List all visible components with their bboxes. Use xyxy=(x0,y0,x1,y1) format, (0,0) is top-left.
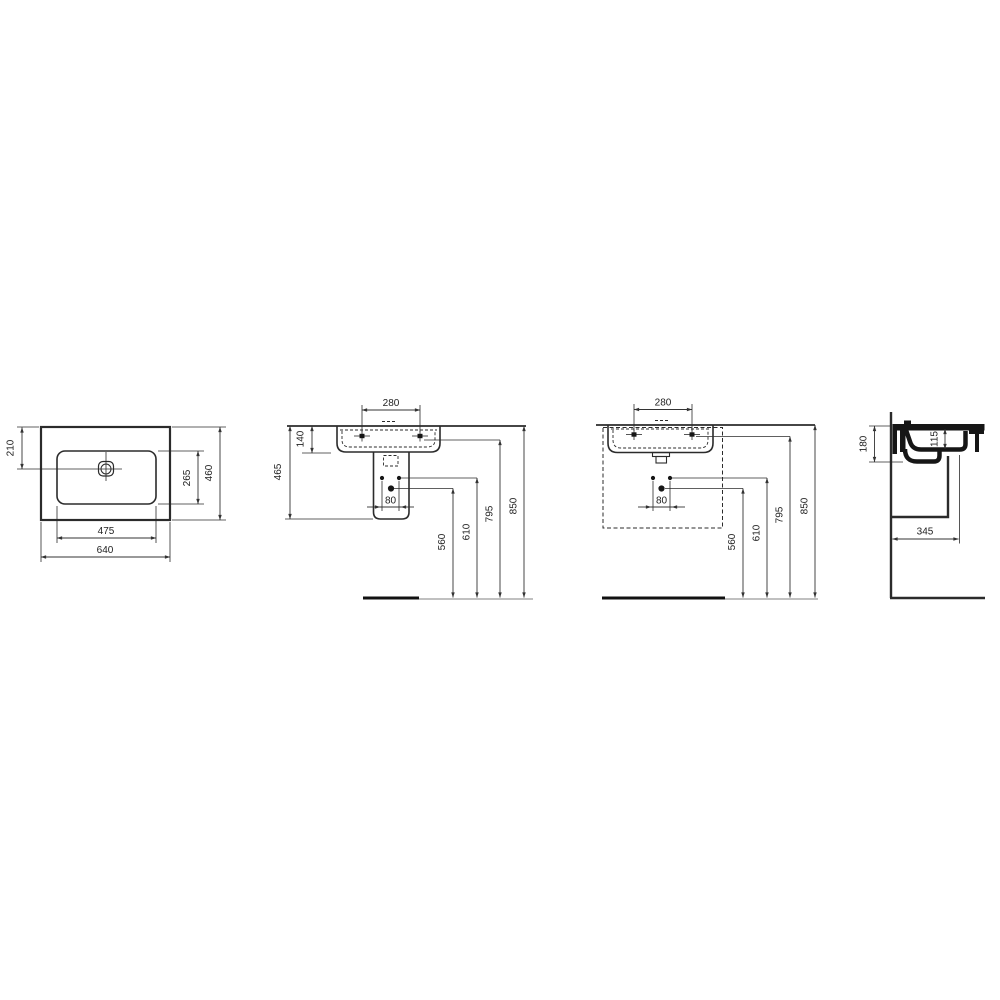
dim-height-850: 850 xyxy=(509,426,525,598)
dim-label-475: 475 xyxy=(98,526,115,537)
tap-hole-left xyxy=(354,431,370,442)
waste-outlet xyxy=(388,485,394,491)
dim-label-610: 610 xyxy=(462,523,473,540)
front-view-pedestal: 280 140 465 80 xyxy=(273,398,533,599)
dim-label-210: 210 xyxy=(6,439,17,456)
front-view-furniture: 280 80 560 610 795 xyxy=(596,398,818,600)
plan-view: 210 265 460 475 640 xyxy=(6,427,227,562)
fixing-bolt-right xyxy=(668,476,672,480)
overflow-channel-wall xyxy=(900,430,906,452)
tap-hole-left xyxy=(626,430,642,441)
dim-label-265: 265 xyxy=(182,469,193,486)
dim-shroud-height: 465 xyxy=(273,426,373,519)
tap-boss xyxy=(904,421,911,425)
hidden-bowl-contour xyxy=(342,431,435,447)
dim-height-560: 560 xyxy=(437,489,453,598)
waste-outlet xyxy=(658,485,664,491)
fixing-bolt-left xyxy=(380,476,384,480)
dim-label-180: 180 xyxy=(859,435,870,452)
dim-label-640: 640 xyxy=(97,545,114,556)
dim-label-80: 80 xyxy=(385,496,397,507)
shroud-side-profile xyxy=(891,456,948,517)
dim-tap-centres: 280 xyxy=(634,398,692,432)
dim-height-560: 560 xyxy=(727,489,743,598)
front-apron-lip xyxy=(975,434,979,452)
dim-label-280: 280 xyxy=(655,398,672,409)
dim-apron-height: 140 xyxy=(296,426,332,453)
dim-label-280: 280 xyxy=(383,398,400,409)
dim-drain-offset: 210 xyxy=(6,427,40,469)
side-section-view: 180 115 345 xyxy=(859,412,986,598)
fixing-bolt-right xyxy=(397,476,401,480)
dim-label-850: 850 xyxy=(509,497,520,514)
dim-label-795: 795 xyxy=(485,505,496,522)
dim-overall-depth: 460 xyxy=(172,427,226,520)
hidden-trap xyxy=(384,456,399,467)
dim-label-795: 795 xyxy=(775,506,786,523)
tap-hole-right xyxy=(684,430,700,441)
dim-label-560: 560 xyxy=(437,533,448,550)
bowl-outline xyxy=(57,451,156,504)
waste-spigot xyxy=(656,457,667,464)
dim-label-460: 460 xyxy=(204,464,215,481)
dim-height-610: 610 xyxy=(462,478,478,598)
dim-height-795: 795 xyxy=(485,440,501,598)
fixing-bolt-left xyxy=(651,476,655,480)
dim-label-610: 610 xyxy=(752,524,763,541)
dim-label-80: 80 xyxy=(656,496,668,507)
dim-bowl-depth: 265 xyxy=(158,451,204,504)
dim-height-850: 850 xyxy=(800,425,816,598)
dim-bowl-width: 475 xyxy=(57,506,156,543)
dim-label-560: 560 xyxy=(727,533,738,550)
technical-drawing-sheet: 210 265 460 475 640 xyxy=(0,0,1000,1000)
dim-height-795: 795 xyxy=(775,437,791,598)
dim-projection: 345 xyxy=(893,527,959,540)
front-rim xyxy=(969,430,984,434)
dim-label-465: 465 xyxy=(273,463,284,480)
washbasin-dimension-drawing: 210 265 460 475 640 xyxy=(0,0,1000,1000)
dim-label-115: 115 xyxy=(930,431,941,447)
back-ledge xyxy=(893,430,898,454)
dim-label-850: 850 xyxy=(800,497,811,514)
dim-label-140: 140 xyxy=(296,430,307,447)
dim-height-610: 610 xyxy=(752,478,768,598)
dim-label-345: 345 xyxy=(917,527,934,538)
dim-bowl-inner-depth: 115 xyxy=(930,429,946,449)
